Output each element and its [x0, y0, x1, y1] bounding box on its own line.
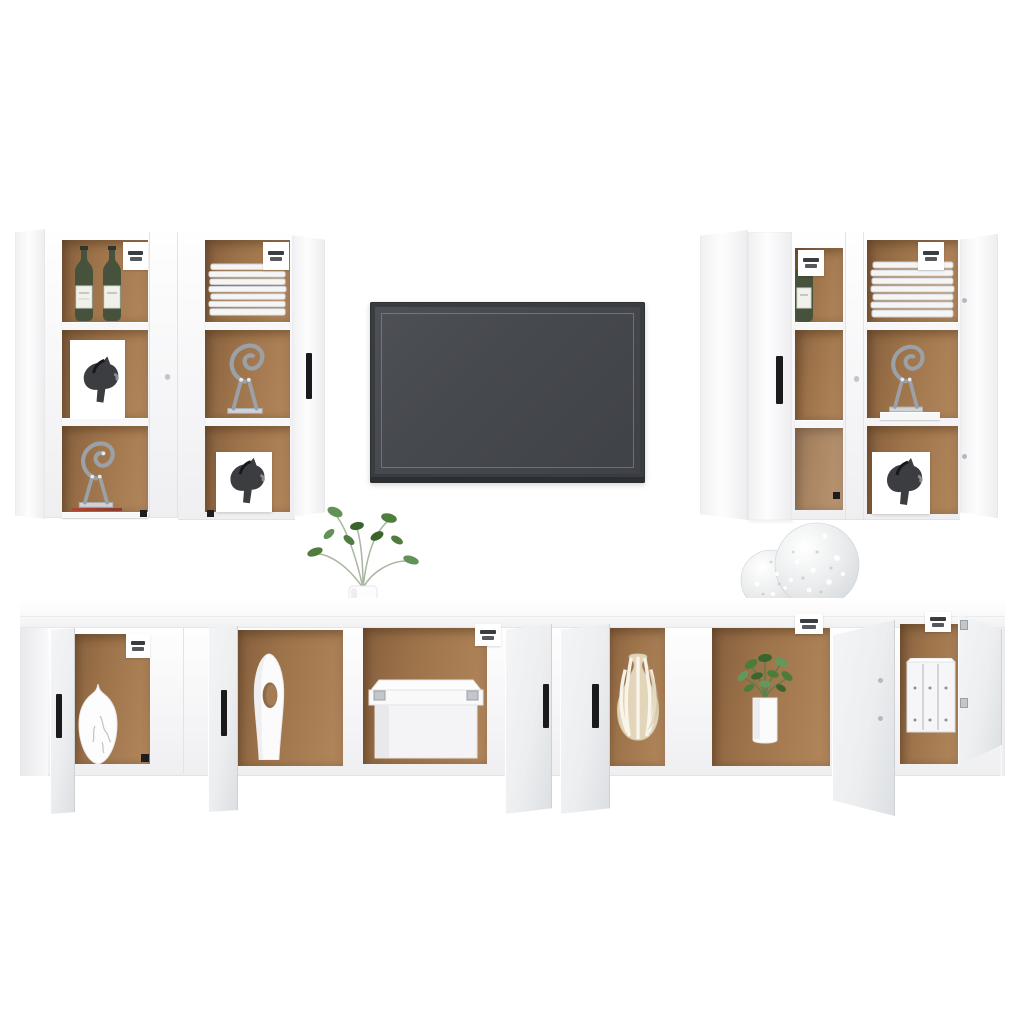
wire-cat-sculpture [222, 332, 268, 416]
hinge-dot [878, 716, 883, 721]
open-door [960, 234, 998, 518]
hinge-hardware-icon [803, 258, 819, 262]
hinge-dot [878, 678, 883, 683]
hinge-hardware-icon [930, 617, 946, 621]
open-door [832, 620, 895, 816]
hinge-plate [123, 242, 148, 270]
fitting-mark [141, 754, 149, 762]
door-handle [56, 694, 62, 738]
bottle [103, 246, 121, 321]
wall-cabinet-group-right [700, 226, 1000, 522]
hinge-plate [475, 624, 501, 646]
white-binders [905, 658, 957, 736]
hinge-hardware-icon [132, 647, 144, 651]
hinge-hardware-icon [480, 630, 496, 634]
white-sculptural-vase [246, 650, 292, 760]
cabinet-side-panel [700, 230, 748, 520]
potted-plant [715, 636, 815, 748]
bench-left-side [20, 628, 48, 776]
shelf-ledge [880, 412, 940, 420]
hinge-dot [962, 298, 967, 303]
tv [370, 302, 645, 483]
tv-bench-row [20, 598, 1005, 820]
door-handle [221, 690, 227, 736]
open-door [748, 232, 792, 520]
panel-gap [149, 232, 150, 518]
wall-cabinet-group-left [15, 226, 327, 522]
door-handle [592, 684, 599, 728]
hinge-hardware-icon [805, 264, 817, 268]
hinge-hardware-icon [960, 698, 968, 708]
fitting-mark [833, 492, 840, 499]
door-knob [165, 374, 170, 379]
open-door [50, 628, 75, 814]
hinge-hardware-icon [128, 251, 144, 255]
sculpture-base-accent [72, 508, 122, 511]
fitting-mark [140, 510, 147, 517]
horse-art-print [70, 340, 125, 418]
compartment-middle [795, 330, 843, 420]
wire-cat-sculpture [884, 332, 928, 416]
horse-sketch [872, 452, 930, 514]
door-handle [306, 353, 312, 399]
hinge-hardware-icon [130, 257, 142, 261]
shelf [205, 418, 290, 426]
hinge-plate [798, 250, 824, 276]
panel-gap [845, 232, 846, 520]
hinge-plate [263, 242, 289, 270]
marble-vase [78, 684, 118, 764]
tv-screen-inner-edge [381, 313, 634, 468]
hinge-hardware-icon [925, 257, 937, 261]
door-knob [854, 376, 859, 381]
panel-gap [863, 232, 864, 520]
hinge-hardware-icon [923, 251, 939, 255]
large-sphere [775, 523, 859, 607]
hinge-plate [918, 242, 944, 270]
cabinet-bottom [62, 512, 148, 518]
hinge-plate [925, 612, 951, 632]
bottle [75, 246, 93, 321]
bench-top-edge [20, 616, 1005, 617]
door-handle [776, 356, 783, 404]
fitting-mark [207, 510, 214, 517]
horse-sketch [216, 452, 272, 512]
wine-bottles [67, 246, 129, 322]
unit-gap [183, 628, 184, 774]
open-door-left-edge [15, 228, 45, 520]
hinge-hardware-icon [268, 251, 284, 255]
horse-sketch [70, 340, 125, 418]
hinge-hardware-icon [270, 257, 282, 261]
horse-art-print [216, 452, 272, 512]
hinge-hardware-icon [932, 623, 944, 627]
shelf [62, 418, 148, 426]
hinge-hardware-icon [482, 636, 494, 640]
hinge-plate [795, 614, 823, 634]
striped-vase [613, 652, 663, 746]
shelf [867, 322, 958, 330]
bench-top [20, 598, 1005, 628]
hinge-hardware-icon [960, 620, 968, 630]
shelf [62, 322, 148, 330]
open-door [560, 624, 610, 814]
open-door [958, 614, 1002, 766]
shelf [205, 322, 290, 330]
door-handle [543, 684, 549, 728]
wire-cat-sculpture [72, 432, 120, 510]
tv-screen [375, 307, 640, 474]
horse-art-print [872, 452, 930, 514]
shelf [795, 322, 843, 330]
white-storage-box [367, 676, 485, 760]
hinge-hardware-icon [131, 641, 146, 645]
hinge-hardware-icon [800, 619, 817, 623]
tv-bottom-bezel [370, 477, 645, 483]
hinge-plate [126, 634, 150, 658]
hinge-hardware-icon [802, 625, 815, 629]
shelf [795, 420, 843, 428]
plant-leaves [306, 505, 420, 567]
hinge-dot [962, 454, 967, 459]
product-photo-canvas [0, 0, 1024, 1024]
